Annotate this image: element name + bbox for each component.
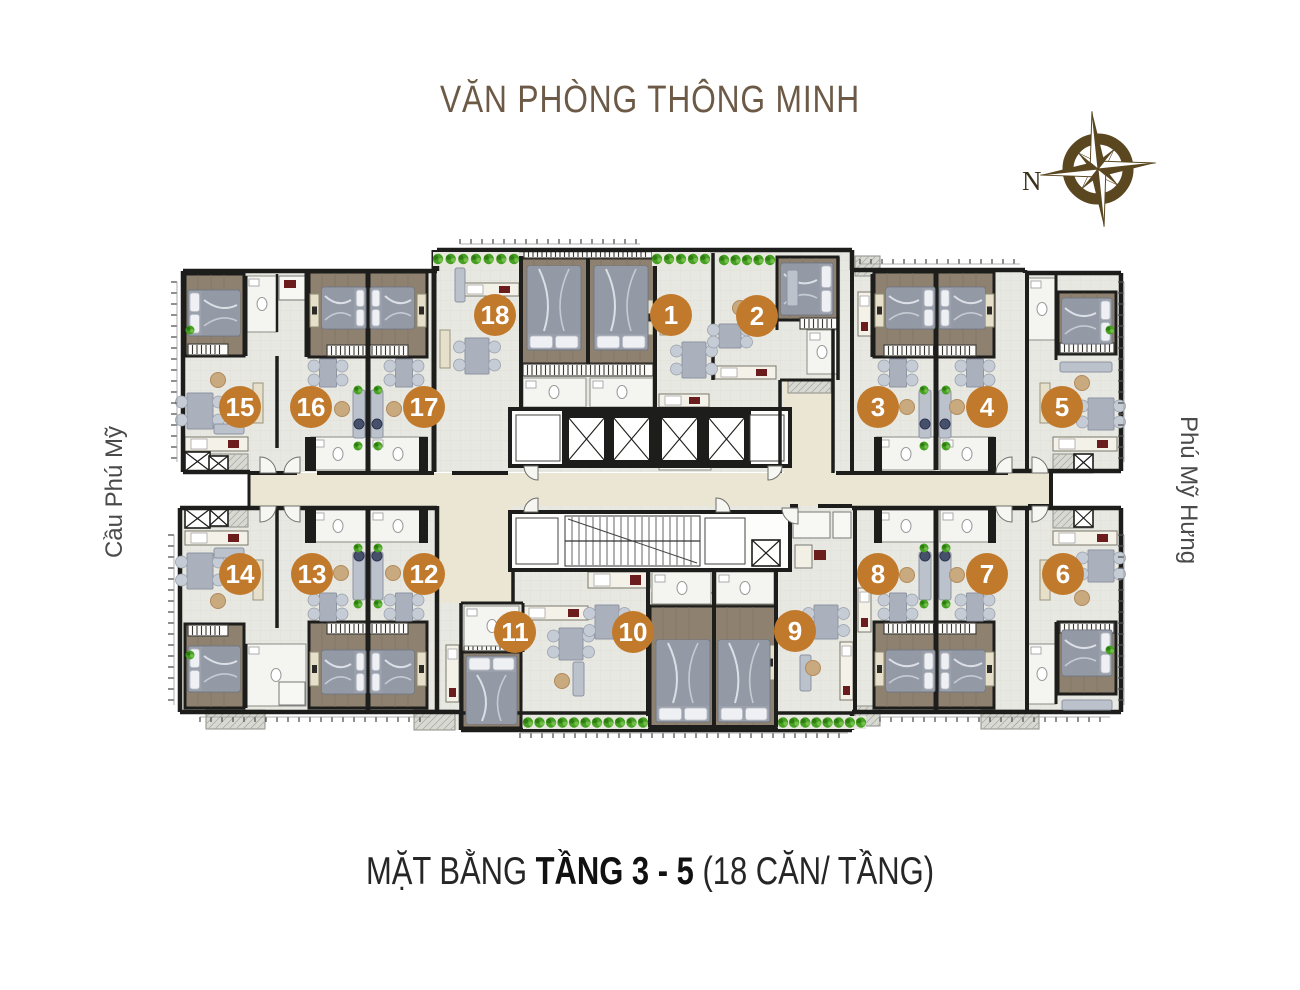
svg-text:7: 7 [980,559,994,589]
svg-text:16: 16 [297,392,326,422]
svg-text:2: 2 [750,301,764,331]
svg-text:8: 8 [871,559,885,589]
svg-text:N: N [1022,166,1042,196]
svg-text:15: 15 [226,392,255,422]
svg-text:12: 12 [410,559,439,589]
svg-text:3: 3 [871,392,885,422]
svg-text:4: 4 [980,392,995,422]
svg-text:13: 13 [298,559,327,589]
svg-text:VĂN PHÒNG THÔNG MINH: VĂN PHÒNG THÔNG MINH [440,77,860,121]
svg-text:6: 6 [1056,559,1070,589]
svg-text:5: 5 [1055,392,1069,422]
svg-text:14: 14 [226,559,255,589]
svg-text:11: 11 [501,617,529,647]
svg-text:MẶT BẰNG TẦNG 3 - 5 (18 CĂN/ T: MẶT BẰNG TẦNG 3 - 5 (18 CĂN/ TẦNG) [366,849,934,893]
svg-text:9: 9 [788,616,802,646]
svg-text:1: 1 [664,300,678,330]
svg-text:Cầu Phú Mỹ: Cầu Phú Mỹ [101,426,128,558]
svg-text:17: 17 [410,392,439,422]
svg-text:Phú Mỹ Hưng: Phú Mỹ Hưng [1175,416,1202,564]
svg-text:18: 18 [481,300,510,330]
svg-text:10: 10 [619,617,648,647]
